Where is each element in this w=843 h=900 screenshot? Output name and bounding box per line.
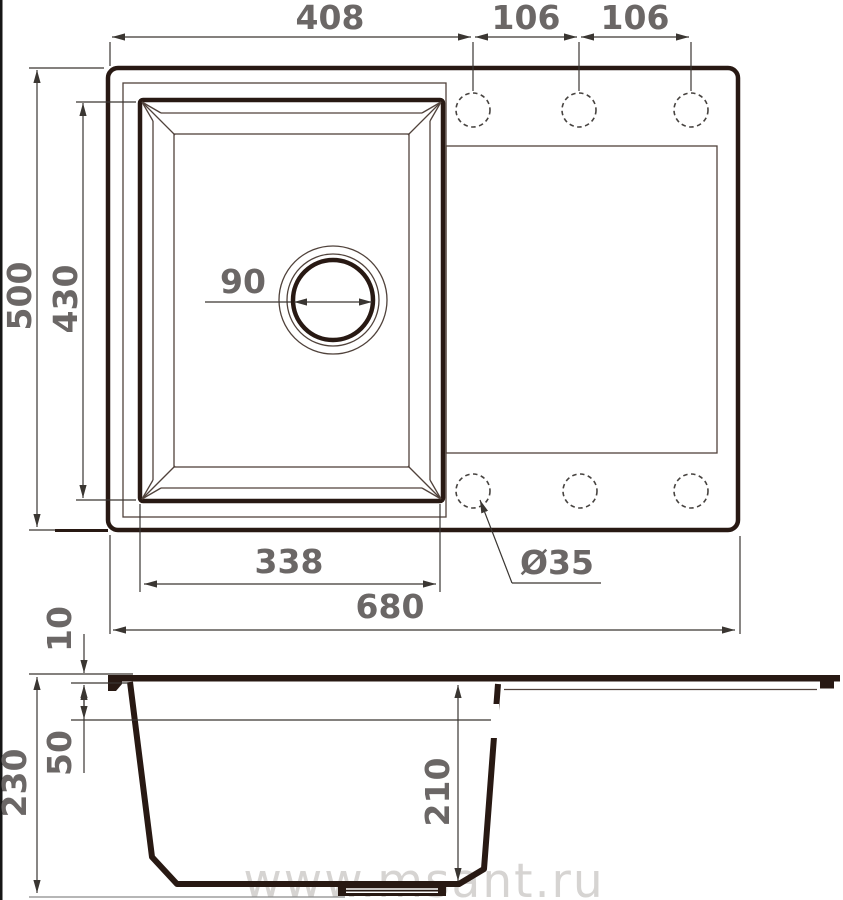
dim-label-408: 408 [296,0,365,37]
overflow-slot [491,704,500,738]
dim-label-50: 50 [40,730,79,776]
dim-label-106a: 106 [492,0,561,37]
drawing-canvas: www.msant.ru [0,0,843,900]
side-right-lip [820,681,834,689]
dim-label-230: 230 [0,749,34,818]
dim-label-500: 500 [0,262,39,331]
dim-label-90: 90 [220,262,266,301]
dim-label-hole-diameter: Ø35 [520,543,594,582]
dim-label-106b: 106 [601,0,670,37]
dim-label-210: 210 [418,758,457,827]
dim-label-680: 680 [356,587,425,626]
dim-label-338: 338 [255,542,324,581]
dim-label-430: 430 [46,265,85,334]
side-top-surface [108,675,840,682]
drain-step [338,884,446,896]
technical-drawing: www.msant.ru [0,0,843,900]
dim-label-10: 10 [40,606,79,652]
